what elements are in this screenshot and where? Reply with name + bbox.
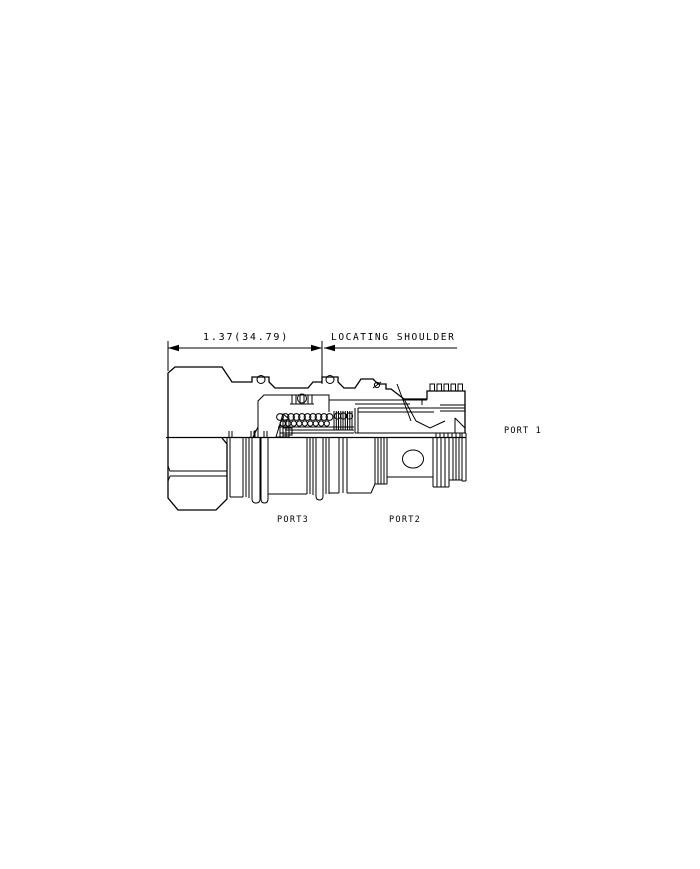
cross-drilled-hole [403,450,424,468]
o-ring-grooves-middle [307,438,339,500]
lower-body [166,431,466,510]
nose-ring-grooves [375,438,387,484]
locating-shoulder-label: LOCATING SHOULDER [331,333,455,343]
valve-cross-section-drawing [0,0,700,869]
body-land-1 [227,438,243,499]
port1-label: PORT 1 [504,427,542,436]
body-land-2 [339,438,375,493]
spring-coils [277,414,354,433]
dimension-arrow-right [311,345,322,351]
o-ring-grooves-left [243,438,307,503]
dimension-label: 1.37(34.79) [203,333,289,343]
upper-assembly [168,367,465,437]
dimension-arrow-left [168,345,179,351]
nose-section [387,450,433,477]
nose-tip [449,433,466,481]
guide-ticks [229,431,267,437]
port2-label: PORT2 [389,516,421,525]
top-thread-teeth [430,384,463,391]
port3-label: PORT3 [277,516,309,525]
dimension-annotation [168,341,457,384]
retainer-block [334,411,353,430]
leader-arrow [324,345,335,351]
seal-gland-left [253,414,292,437]
drawing-canvas: 1.37(34.79) LOCATING SHOULDER PORT 1 POR… [0,0,700,869]
hex-nut [168,438,227,510]
